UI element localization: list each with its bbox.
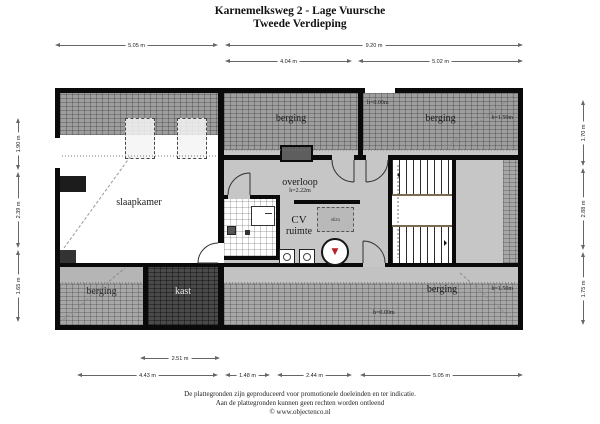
room-label-slaapkamer: slaapkamer <box>60 197 218 208</box>
dim-label: 9.20 m <box>363 43 386 49</box>
height-label: h=0.00m <box>373 310 395 316</box>
skylight-icon <box>177 118 207 159</box>
dim-right-2: 2.88 m <box>580 168 587 250</box>
dim-label: 1.90 m <box>16 133 22 156</box>
room-label-cv: CV <box>269 214 329 226</box>
shower-head-icon <box>227 226 236 235</box>
washer-icon <box>299 249 315 264</box>
dim-top-left: 5.05 m <box>55 42 218 49</box>
page-subtitle: Tweede Verdieping <box>0 18 600 30</box>
door-opening-bottom-berging <box>363 263 385 267</box>
wall-outer-bottom <box>55 325 523 330</box>
wall-shower-bottom <box>224 256 280 260</box>
dim-label: 5.05 m <box>430 373 453 379</box>
stair-flight-lower <box>392 227 452 263</box>
dim-label: 4.43 m <box>136 373 159 379</box>
room-label-berging-top-left: berging <box>224 113 358 124</box>
dim-right-1: 1.70 m <box>580 100 587 166</box>
dim-left-2: 2.39 m <box>15 172 22 248</box>
door-opening-shower <box>228 195 250 199</box>
wall-stub-bottom-left <box>60 250 76 263</box>
height-label: h=1.50m <box>455 286 513 292</box>
stair-direction-arrow <box>444 240 450 246</box>
wall-middle-vertical <box>218 93 224 325</box>
room-label-berging-bottom-left: berging <box>60 286 143 297</box>
room-label-overloop: overloop <box>260 177 340 188</box>
dim-bottom-2: 1.48 m <box>225 372 270 379</box>
wall-outer-top <box>55 88 523 93</box>
dim-label: 1.48 m <box>236 373 259 379</box>
disclaimer-line-2: Aan de plattegronden kunnen geen rechten… <box>0 399 600 407</box>
door-opening-berging-right <box>366 155 388 160</box>
dim-top-right: 9.20 m <box>225 42 523 49</box>
stair-direction-arrow <box>394 172 400 178</box>
window-top <box>365 88 395 93</box>
dim-label: 2.51 m <box>169 356 192 362</box>
copyright-line: © www.objectenco.nl <box>0 408 600 416</box>
dim-label: 1.65 m <box>16 275 22 298</box>
floorplan-page: Karnemelksweg 2 - Lage Vuursche Tweede V… <box>0 0 600 424</box>
wall-stairs-right <box>452 160 456 263</box>
dim-label: 1.75 m <box>581 277 587 300</box>
vlizo-label: vlizo <box>331 217 340 222</box>
dim-label: 5.05 m <box>125 43 148 49</box>
room-label-kast: kast <box>148 286 218 297</box>
door-opening-cv <box>280 200 294 204</box>
dim-left-1: 1.90 m <box>15 118 22 170</box>
page-title: Karnemelksweg 2 - Lage Vuursche <box>0 5 600 17</box>
door-opening-slaapkamer <box>218 243 224 263</box>
dim-bottom-1: 4.43 m <box>77 372 218 379</box>
dim-top2-right: 5.02 m <box>358 58 523 65</box>
dim-left-3: 1.65 m <box>15 250 22 322</box>
dim-right-3: 1.75 m <box>580 252 587 325</box>
stair-edge <box>392 225 452 227</box>
boiler-glyph: ▼ <box>332 248 339 257</box>
height-label: h=0.00m <box>367 100 389 106</box>
dim-label: 4.04 m <box>277 59 300 65</box>
disclaimer-line-1: De plattegronden zijn geproduceerd voor … <box>0 390 600 398</box>
wall-stairs-left <box>388 160 392 263</box>
wall-stub-left <box>60 176 86 192</box>
room-label-cv-2: ruimte <box>269 226 329 237</box>
dim-top2-left: 4.04 m <box>225 58 352 65</box>
dim-label: 2.44 m <box>303 373 326 379</box>
height-label: h=2.22m <box>260 188 340 194</box>
dim-label: 1.70 m <box>581 122 587 145</box>
dim-bottom-3: 2.44 m <box>277 372 352 379</box>
dim-bottom-kast: 2.51 m <box>140 355 220 362</box>
dim-label: 2.88 m <box>581 198 587 221</box>
washer-icon <box>279 249 295 264</box>
stair-flight-upper <box>392 160 452 196</box>
cv-boiler-icon: ▼ <box>321 238 349 266</box>
height-label: h=1.50m <box>463 115 513 121</box>
window-left <box>55 138 60 168</box>
chimney <box>280 145 313 162</box>
stair-edge <box>392 194 452 196</box>
dim-bottom-4: 5.05 m <box>360 372 523 379</box>
drain-icon <box>245 230 250 235</box>
floorplan: vlizo ▼ berging berging h=0.00m h=1.50m … <box>55 88 523 330</box>
dim-label: 5.02 m <box>429 59 452 65</box>
skylight-icon <box>125 118 155 159</box>
wall-outer-right <box>518 88 523 330</box>
wall-berging-divider <box>358 93 363 155</box>
dim-label: 2.39 m <box>16 199 22 222</box>
door-opening-berging-left <box>332 155 354 160</box>
roof-slope-strip-right <box>503 160 518 263</box>
